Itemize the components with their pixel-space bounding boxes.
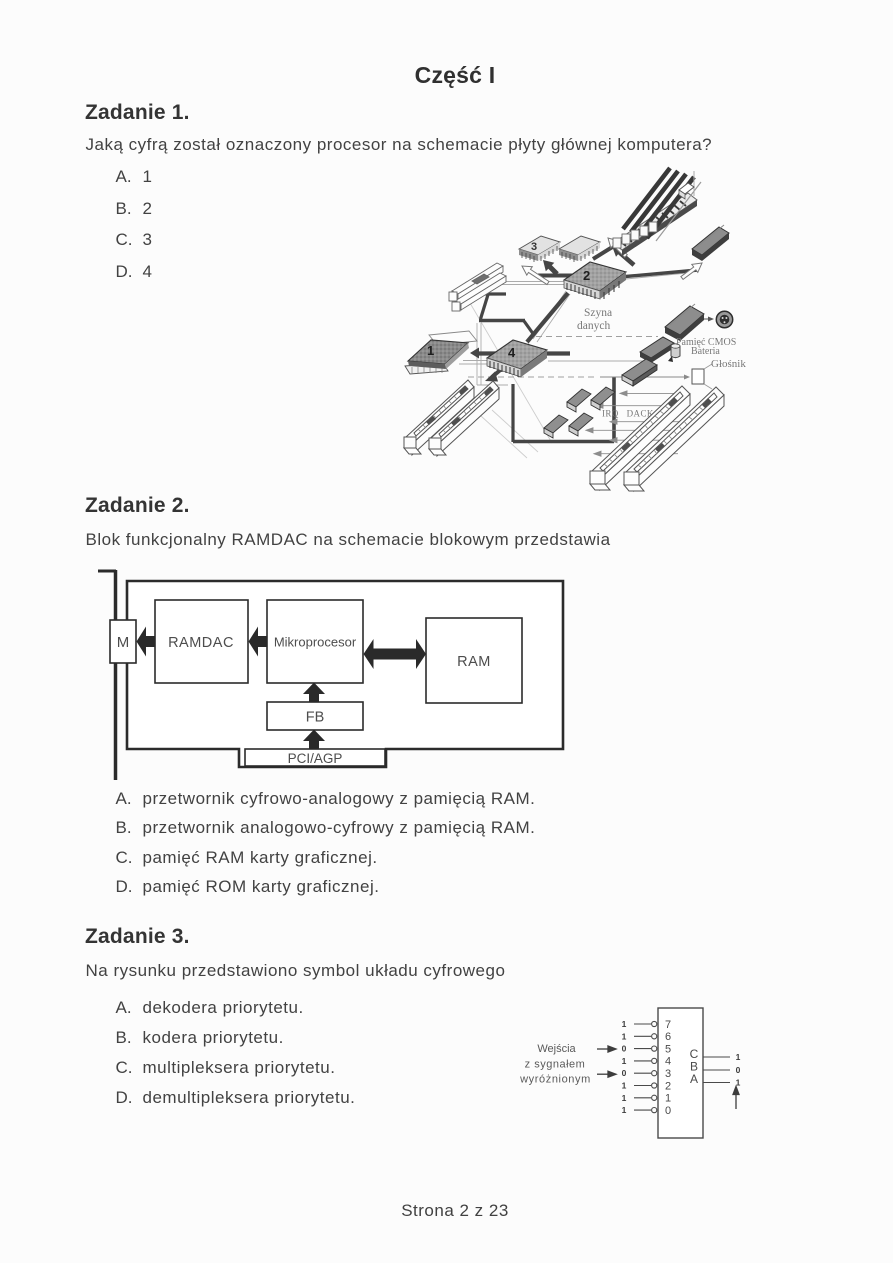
svg-text:PCI/AGP: PCI/AGP [288,751,343,766]
svg-text:wyróżnionym: wyróżnionym [519,1074,591,1086]
svg-text:Bateria: Bateria [691,346,720,357]
svg-text:2: 2 [583,268,590,283]
svg-text:1: 1 [665,1093,671,1105]
svg-text:Głośnik: Głośnik [711,358,746,370]
svg-text:z sygnałem: z sygnałem [525,1058,586,1070]
svg-text:0: 0 [665,1105,671,1117]
svg-text:1: 1 [622,1105,627,1115]
svg-text:1: 1 [622,1019,627,1029]
svg-text:RAMDAC: RAMDAC [168,635,234,651]
svg-text:4: 4 [665,1056,671,1068]
svg-text:7: 7 [665,1019,671,1031]
svg-text:1: 1 [736,1052,741,1062]
svg-text:5: 5 [665,1043,671,1055]
svg-text:RAM: RAM [457,654,491,670]
svg-text:0: 0 [622,1044,627,1054]
svg-text:M: M [117,634,130,651]
svg-text:A: A [690,1072,698,1086]
svg-text:0: 0 [736,1065,741,1075]
svg-text:1: 1 [622,1056,627,1066]
svg-text:3: 3 [531,241,537,253]
svg-text:1: 1 [622,1081,627,1091]
svg-text:0: 0 [622,1068,627,1078]
svg-text:danych: danych [577,320,610,332]
svg-text:1: 1 [427,343,434,358]
svg-text:Wejścia: Wejścia [537,1043,576,1055]
svg-text:Szyna: Szyna [584,307,612,319]
svg-text:Mikroprocesor: Mikroprocesor [274,635,357,650]
svg-text:1: 1 [622,1031,627,1041]
svg-text:6: 6 [665,1031,671,1043]
svg-text:FB: FB [306,710,325,726]
svg-text:4: 4 [508,345,516,360]
svg-text:2: 2 [665,1080,671,1092]
svg-text:IRQ DACK: IRQ DACK [602,409,654,419]
svg-text:3: 3 [665,1068,671,1080]
svg-text:1: 1 [622,1093,627,1103]
